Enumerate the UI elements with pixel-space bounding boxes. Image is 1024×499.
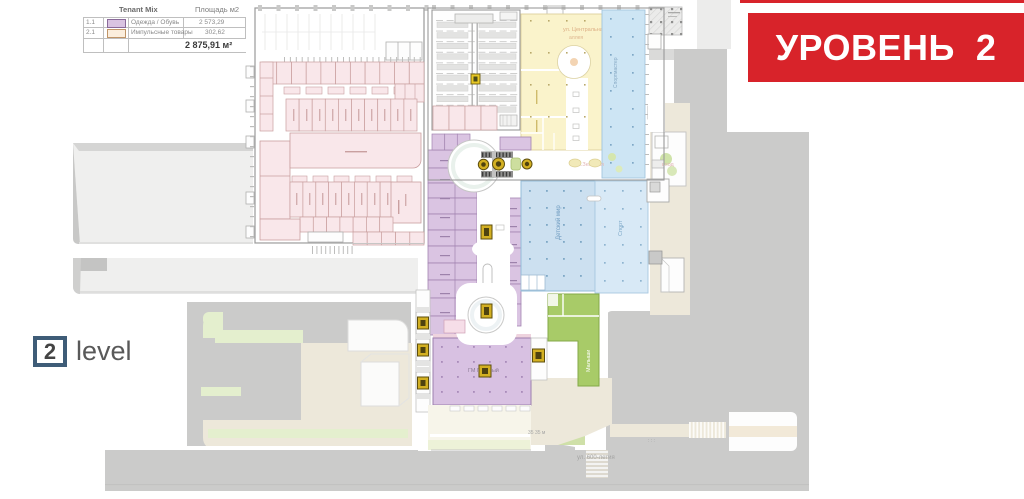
svg-text:Детский мир: Детский мир: [555, 205, 562, 240]
svg-text:ул. 600-летия: ул. 600-летия: [577, 455, 615, 461]
svg-text:аллея: аллея: [569, 35, 583, 41]
svg-text:Спорт: Спорт: [618, 220, 624, 236]
svg-text:Малыши: Малыши: [586, 350, 592, 372]
svg-text:Спортмастер: Спортмастер: [613, 57, 619, 88]
svg-text:: : :: : : :: [648, 438, 655, 444]
svg-text:ул. Центральная: ул. Центральная: [563, 27, 606, 33]
svg-text:35 35 м: 35 35 м: [528, 430, 546, 436]
